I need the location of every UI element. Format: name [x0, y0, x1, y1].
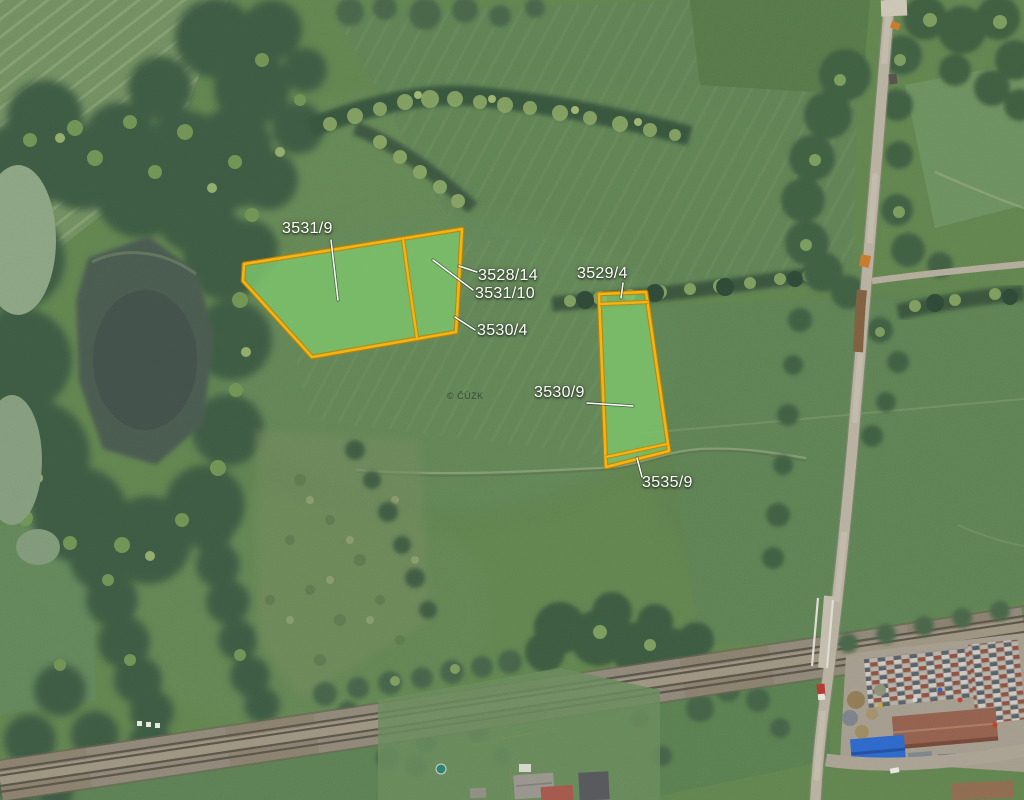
- aerial-cadastral-map[interactable]: 3531/9 3528/14 3531/10 3530/4 3529/4 353…: [0, 0, 1024, 800]
- aerial-imagery: [0, 0, 1024, 800]
- cuzk-watermark: © ČÚZK: [447, 391, 484, 401]
